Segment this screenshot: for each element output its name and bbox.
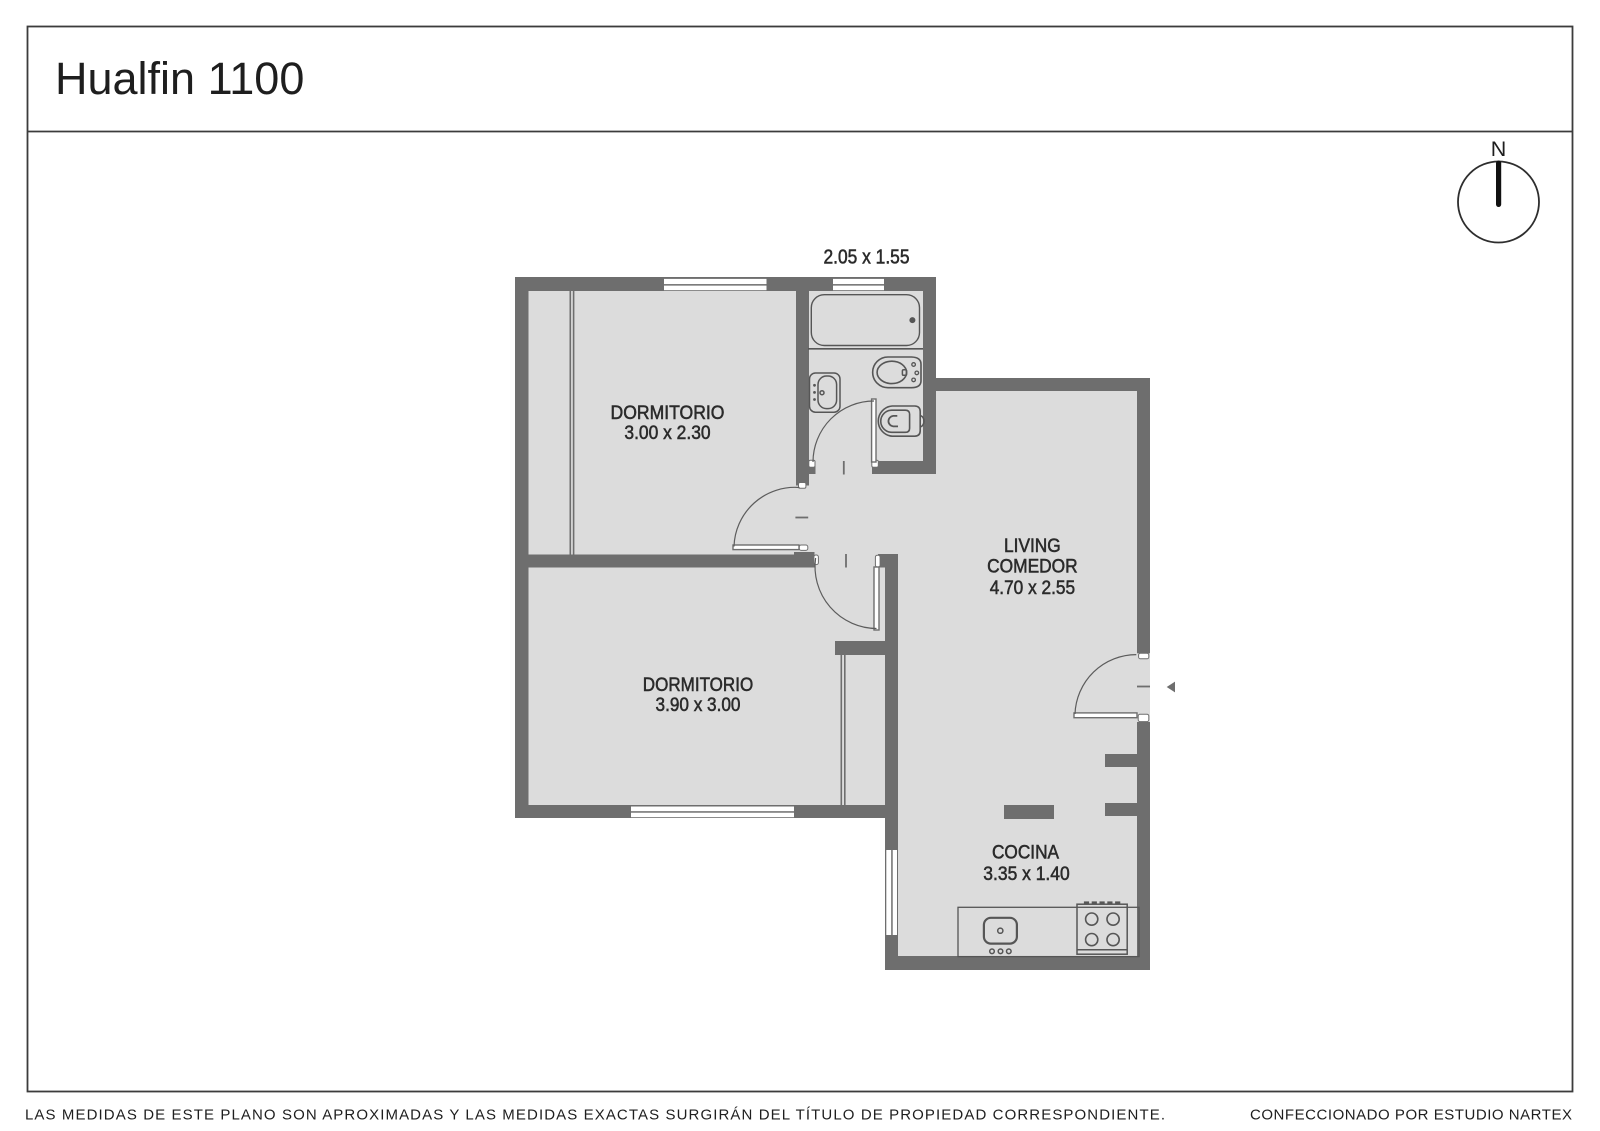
svg-text:COCINA: COCINA	[992, 842, 1059, 863]
svg-text:3.90 x 3.00: 3.90 x 3.00	[656, 695, 741, 716]
svg-text:Hualfin 1100: Hualfin 1100	[55, 53, 304, 104]
svg-text:DORMITORIO: DORMITORIO	[643, 675, 753, 696]
svg-text:3.35 x 1.40: 3.35 x 1.40	[983, 864, 1069, 885]
svg-text:CONFECCIONADO POR ESTUDIO NART: CONFECCIONADO POR ESTUDIO NARTEX	[1250, 1107, 1572, 1124]
svg-text:LIVING: LIVING	[1004, 536, 1061, 557]
svg-text:2.05 x 1.55: 2.05 x 1.55	[824, 247, 910, 269]
svg-text:3.00 x 2.30: 3.00 x 2.30	[624, 423, 710, 444]
svg-text:4.70 x 2.55: 4.70 x 2.55	[990, 578, 1075, 599]
svg-text:COMEDOR: COMEDOR	[987, 557, 1078, 578]
svg-text:DORMITORIO: DORMITORIO	[611, 403, 725, 424]
svg-text:N: N	[1491, 137, 1507, 161]
svg-text:LAS MEDIDAS DE ESTE PLANO SON: LAS MEDIDAS DE ESTE PLANO SON APROXIMADA…	[25, 1107, 1165, 1124]
